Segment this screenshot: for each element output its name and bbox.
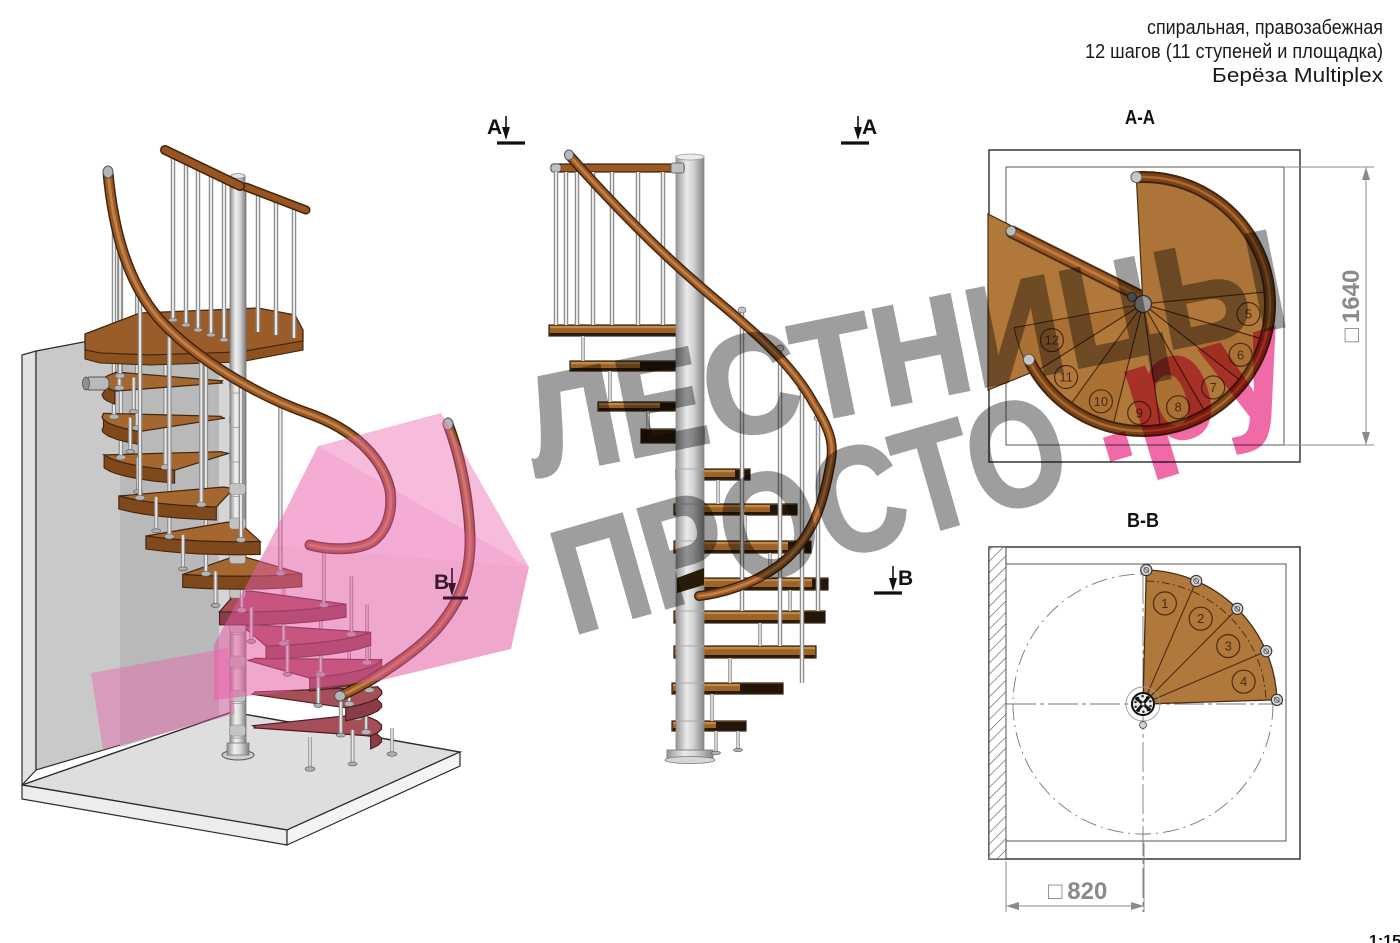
svg-text:A: A [862,116,877,139]
svg-text:12 шагов (11 ступеней и площад: 12 шагов (11 ступеней и площадка) [1085,41,1383,63]
svg-text:B: B [434,571,449,594]
svg-text:□ 1640: □ 1640 [1338,270,1365,343]
svg-text:Берёза Multiplex: Берёза Multiplex [1212,65,1383,87]
svg-text:1: 1 [1161,596,1168,611]
svg-text:A-A: A-A [1125,107,1155,129]
svg-text:□ 820: □ 820 [1048,878,1107,905]
svg-text:спиральная, правозабежная: спиральная, правозабежная [1147,17,1383,39]
svg-text:B-B: B-B [1127,510,1159,532]
svg-text:A: A [487,116,502,139]
svg-text:3: 3 [1225,639,1232,654]
svg-text:4: 4 [1240,674,1247,689]
svg-text:2: 2 [1197,611,1204,626]
svg-text:1:15: 1:15 [1369,933,1400,943]
